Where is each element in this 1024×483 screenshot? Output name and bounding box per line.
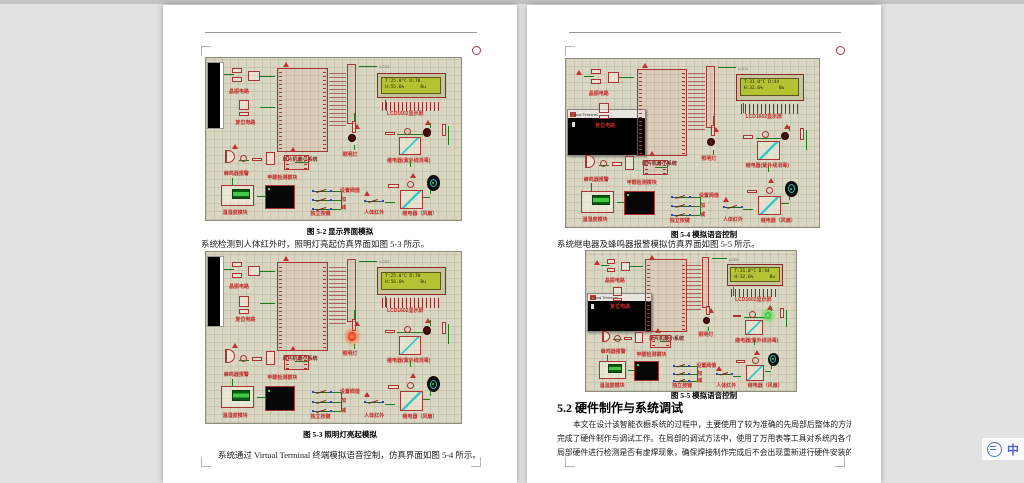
virtual-terminal-strip <box>208 257 223 325</box>
terminal-module-cursor <box>268 390 270 392</box>
terminal-module <box>265 185 296 208</box>
lcd1602-module: T:31.0°C D:44 H:32.6% Bu <box>727 264 784 286</box>
key-switch-lever <box>677 364 685 367</box>
key-switch <box>313 392 331 393</box>
pin-dot <box>312 208 314 210</box>
wire <box>354 145 355 150</box>
key-hint-label: 减 <box>341 408 346 414</box>
power-arrow-icon <box>723 197 729 202</box>
fan-transistor <box>766 187 773 194</box>
pir-switch <box>717 374 732 375</box>
figure-5-4-schematic: Virtual Terminal×晶振电路复位电路单片机最小系统LCD1T:31… <box>565 58 820 228</box>
wire <box>712 258 727 259</box>
fan-motor <box>427 175 440 190</box>
figure-5-5-schematic: Virtual Terminal×晶振电路复位电路单片机最小系统LCD1T:31… <box>585 250 797 392</box>
fan-relay <box>758 196 781 215</box>
adc-pins-right <box>304 156 307 168</box>
dht-label: 温湿度模块 <box>582 217 607 223</box>
mcu-chip <box>277 68 328 152</box>
key-switch-lever <box>676 213 686 217</box>
dht-screen <box>232 189 250 199</box>
pin-dot <box>671 214 673 216</box>
wire <box>619 77 634 78</box>
ime-mode-chinese[interactable]: 中 <box>1007 441 1019 458</box>
wire <box>708 327 709 331</box>
pin-header <box>702 257 710 309</box>
pir-label: 人体红外 <box>716 383 736 389</box>
power-arrow-icon <box>594 260 600 265</box>
keys-label: 独立按键 <box>672 383 692 389</box>
dht-label: 温湿度模块 <box>223 413 248 419</box>
pir-switch <box>365 402 383 403</box>
dht-module <box>221 185 254 206</box>
crystal-circuit-label: 晶振电路 <box>229 89 249 95</box>
key-switch-lever <box>316 409 326 413</box>
uv-transistor <box>404 326 411 333</box>
fan-resistor <box>736 360 744 363</box>
lamp-resistor <box>352 121 357 132</box>
key-switch-lever <box>676 195 686 199</box>
lcd-reference: LCD1 <box>738 66 748 72</box>
pin-dot <box>741 206 743 208</box>
mcu-chip <box>637 69 688 156</box>
capacitor <box>607 268 615 272</box>
ch2o-potentiometer <box>266 351 275 365</box>
buzzer-resistor <box>624 337 632 340</box>
pir-switch-lever <box>720 372 728 375</box>
lamp-label: 照明灯 <box>342 351 357 357</box>
terminal-module-cursor <box>268 188 270 190</box>
reset-resistor <box>239 309 249 313</box>
terminal-module-cursor <box>637 364 639 366</box>
pin-dot <box>312 391 314 393</box>
pin-dot <box>731 373 733 375</box>
power-arrow-icon <box>410 373 416 378</box>
capacitor <box>591 79 601 84</box>
lcd-reference: LCD1 <box>379 259 389 265</box>
reset-capacitor <box>239 100 249 110</box>
wire <box>397 134 423 135</box>
power-arrow-icon <box>232 343 238 348</box>
pin-dot <box>312 199 314 201</box>
pir-switch <box>365 201 383 202</box>
figure-5-2-schematic: 晶振电路复位电路单片机最小系统LCD1T:25.0°C D:70 H:55.6%… <box>205 57 462 221</box>
uv-pullup-resistor <box>800 128 805 140</box>
lcd-resistor-network <box>731 289 779 297</box>
lamp-led <box>348 134 356 142</box>
fan-motor-ring <box>430 380 437 389</box>
buzzer-speaker <box>602 331 610 342</box>
lcd1602-module: T:25.0°C D:70 H:55.6% Bu <box>377 73 446 99</box>
pin-dot <box>330 391 332 393</box>
wire <box>260 303 275 304</box>
terminal-module-cursor <box>627 194 629 196</box>
capacitor <box>232 273 242 278</box>
key-switch <box>672 197 690 198</box>
data-bus <box>329 266 346 324</box>
buzzer-transistor <box>240 155 247 162</box>
ime-toolbar[interactable]: 中 <box>981 437 1024 461</box>
ch2o-adc-chip <box>643 160 668 175</box>
mcu-pins-left <box>647 262 650 330</box>
wire <box>385 202 395 203</box>
uv-led <box>781 132 789 140</box>
wire <box>359 66 377 67</box>
lamp-led <box>703 317 710 324</box>
power-arrow-icon <box>425 318 431 323</box>
fan-resistor <box>747 190 757 193</box>
dht-label: 温湿度模块 <box>600 383 625 389</box>
window-top-strip <box>0 0 1024 4</box>
document-page-left: 晶振电路复位电路单片机最小系统LCD1T:25.0°C D:70 H:55.6%… <box>163 5 517 483</box>
pin-dot <box>673 365 675 367</box>
lcd-resistor-network <box>382 102 441 112</box>
body-text-line: 本文在设计该智能衣橱系统的过程中，主要使用了较为准确的先局部后整体的方法 <box>557 419 851 430</box>
terminal-cursor <box>591 304 594 309</box>
ch2o-potentiometer <box>625 156 634 169</box>
power-arrow-icon <box>642 63 648 68</box>
key-switch <box>313 200 331 201</box>
key-hint-label: 加 <box>700 203 705 209</box>
wire <box>331 402 341 403</box>
fan-motor <box>785 181 798 197</box>
fan-relay-label: 继电器（风扇） <box>761 218 796 224</box>
mcu-pins-right <box>323 70 326 149</box>
fan-motor-dot <box>772 358 774 360</box>
wire <box>743 209 753 210</box>
wire <box>331 200 341 201</box>
reset-capacitor <box>239 296 249 306</box>
lcd-label: LCD1602显示屏 <box>387 308 423 314</box>
lcd-screen: T:31.0°C D:44 H:32.6% Bu <box>730 267 779 282</box>
reset-circuit-label: 复位电路 <box>235 120 255 126</box>
uv-pullup-resistor <box>780 308 784 318</box>
power-arrow-icon <box>364 191 370 196</box>
reset-capacitor <box>613 287 621 295</box>
fan-relay-label: 继电器（风扇） <box>748 383 783 389</box>
crystal-circuit-label: 晶振电路 <box>229 284 249 290</box>
text-boundary-mark <box>836 46 845 55</box>
text-boundary-mark <box>565 457 575 467</box>
pin-dot <box>330 190 332 192</box>
mcu-pins-left <box>279 265 282 348</box>
key-hint-label: 设置阀值 <box>699 193 719 199</box>
key-switch <box>313 191 331 192</box>
key-switch-lever <box>316 189 326 193</box>
uv-resistor <box>743 135 753 138</box>
key-switch-lever <box>316 390 326 394</box>
pin-dot <box>723 206 725 208</box>
reset-resistor <box>239 112 249 116</box>
pin-dot <box>716 373 718 375</box>
mcu-pins-left <box>639 72 642 154</box>
adc-pins-right <box>304 356 307 369</box>
text-boundary-mark <box>835 457 845 467</box>
pin-dot <box>689 214 691 216</box>
uv-relay <box>745 320 764 335</box>
lamp-led <box>707 138 715 146</box>
adc-pins-left <box>286 156 289 168</box>
key-switch-lever <box>316 198 326 202</box>
wire <box>385 404 395 405</box>
wire <box>448 324 449 345</box>
uv-resistor <box>385 330 395 333</box>
wire <box>733 376 741 377</box>
paragraph: 系统检测到人体红外时，照明灯亮起仿真界面如图 5-3 所示。 <box>201 238 481 250</box>
lcd-label: LCD1602显示屏 <box>746 114 782 120</box>
adc-pins-left <box>652 336 655 346</box>
power-arrow-icon <box>410 173 416 178</box>
uv-transistor <box>749 311 756 318</box>
lcd1602-module: T:31.0°C D:44 H:32.6% Bu <box>736 74 804 101</box>
fan-motor-ring <box>788 184 795 193</box>
lcd-screen: T:25.0°C D:70 H:55.6% Bu <box>381 77 441 94</box>
buzzer-resistor <box>252 357 262 360</box>
mcu-chip <box>277 262 328 351</box>
key-switch <box>672 206 690 207</box>
keys-label: 独立按键 <box>311 211 331 217</box>
power-arrow-icon <box>425 120 431 125</box>
key-switch <box>674 366 689 367</box>
terminal-cursor <box>572 122 575 127</box>
body-text-line: 局部硬件进行检测是否有虚焊现象，确保焊接制作完成后不会出现重新进行硬件安装的 <box>557 447 851 458</box>
page-header-rule <box>569 32 841 33</box>
fan-motor-dot <box>790 188 792 190</box>
power-arrow-icon <box>716 366 722 371</box>
wire <box>397 332 423 333</box>
wire <box>260 271 275 272</box>
section-heading-5-2: 5.2 硬件制作与系统调试 <box>557 399 683 416</box>
uv-transistor <box>404 128 411 135</box>
buzzer-label: 蜂鸣器报警 <box>601 349 626 355</box>
dht-screen <box>592 195 610 205</box>
lamp-label: 照明灯 <box>342 152 357 158</box>
power-arrow-icon <box>283 62 289 67</box>
page-header-rule <box>205 32 477 33</box>
pir-label: 人体红外 <box>364 210 384 216</box>
uv-resistor <box>733 315 741 318</box>
wire <box>617 202 625 203</box>
fan-motor-ring <box>430 179 437 187</box>
paragraph: 系统继电器及蜂鸣器报警模拟仿真界面如图 5-5 所示。 <box>557 238 852 250</box>
wire <box>601 265 609 266</box>
pin-header <box>347 64 356 124</box>
uv-relay <box>757 141 780 159</box>
fan-transistor <box>752 357 759 364</box>
reset-resistor <box>599 115 609 119</box>
reset-resistor <box>613 298 621 302</box>
wire <box>806 130 807 150</box>
pir-label: 人体红外 <box>723 217 743 223</box>
uv-led <box>423 326 431 335</box>
lcd-resistor-network <box>382 298 441 308</box>
lcd1602-module: T:25.0°C D:70 H:56.6% Bu <box>377 267 446 294</box>
capacitor <box>232 77 242 82</box>
pin-dot <box>673 380 675 382</box>
wire <box>448 126 449 145</box>
pin-dot <box>673 373 675 375</box>
key-hint-label: 减 <box>697 378 702 384</box>
pin-dot <box>312 190 314 192</box>
wire <box>257 397 265 398</box>
power-arrow-icon <box>283 256 289 261</box>
uv-relay <box>399 336 422 355</box>
fan-transistor <box>407 382 414 389</box>
fan-resistor <box>388 385 398 388</box>
ch2o-adc-chip <box>650 335 671 348</box>
uv-resistor <box>385 132 395 135</box>
power-arrow-icon <box>754 350 760 355</box>
data-bus <box>329 71 346 126</box>
lcd-reference: LCD1 <box>379 64 389 70</box>
wire <box>423 399 431 400</box>
fan-motor <box>768 353 779 366</box>
terminal-module <box>265 386 296 411</box>
uv-relay-label: 继电器(紫外线消毒) <box>387 158 430 164</box>
key-switch-lever <box>676 204 686 208</box>
wire <box>786 310 787 327</box>
lamp-label: 照明灯 <box>701 156 716 162</box>
word-processor-canvas: 晶振电路复位电路单片机最小系统LCD1T:25.0°C D:70 H:55.6%… <box>0 0 1024 483</box>
ch2o-potentiometer <box>266 152 275 165</box>
pin-dot <box>671 196 673 198</box>
text-boundary-mark <box>201 46 211 56</box>
crystal-circuit-label: 晶振电路 <box>589 91 609 97</box>
uv-led <box>423 128 431 136</box>
uv-relay-label: 继电器(紫外线消毒) <box>746 163 789 169</box>
power-arrow-icon <box>768 178 774 183</box>
virtual-terminal-title: Virtual Terminal <box>570 112 597 117</box>
wire <box>224 269 234 270</box>
pin-dot <box>688 365 690 367</box>
key-hint-label: 加 <box>341 398 346 404</box>
pir-label: 人体红外 <box>364 413 384 419</box>
pin-dot <box>312 410 314 412</box>
crystal-oscillator <box>248 266 259 276</box>
reset-capacitor <box>599 103 609 113</box>
uv-relay-label: 继电器(紫外线消毒) <box>387 358 430 364</box>
key-hint-label: 加 <box>697 371 702 377</box>
lamp-label: 照明灯 <box>698 332 713 338</box>
dht-module <box>599 361 626 379</box>
reset-circuit-label: 复位电路 <box>610 304 630 310</box>
paragraph: 系统通过 Virtual Terminal 终端模拟语音控制，仿真界面如图 5-… <box>201 449 481 461</box>
fan-relay <box>400 190 423 209</box>
buzzer-label: 蜂鸣器报警 <box>224 372 249 378</box>
fan-relay <box>746 365 765 381</box>
fan-motor-dot <box>432 383 434 385</box>
pin-dot <box>382 401 384 403</box>
fan-resistor <box>388 184 398 187</box>
mcu-pins-right <box>323 265 326 348</box>
capacitor <box>232 68 242 73</box>
adc-pins-left <box>286 356 289 369</box>
terminal-module <box>634 361 659 381</box>
pir-switch <box>724 207 742 208</box>
figure-5-3-caption: 图 5-3 照明灯亮起模拟 <box>163 429 517 440</box>
wire <box>260 107 275 108</box>
lcd-label: LCD1602显示屏 <box>387 111 423 117</box>
body-text-line: 完成了硬件制作与调试工作。在局部的调试方法中，使用了万用表等工具对系统内各个 <box>557 433 851 444</box>
wire <box>584 76 594 77</box>
key-hint-label: 设置阀值 <box>340 188 360 194</box>
lamp-resistor <box>352 319 357 331</box>
text-boundary-mark <box>472 46 481 55</box>
figure-5-2-caption: 图 5-2 显示界面模拟 <box>163 226 517 237</box>
virtual-terminal-strip <box>208 63 223 128</box>
wire <box>354 344 355 349</box>
fan-relay-label: 继电器（风扇） <box>402 211 437 217</box>
dht-module <box>581 191 614 213</box>
capacitor <box>607 259 615 263</box>
power-arrow-icon <box>364 392 370 397</box>
mcu-pins-left <box>279 70 282 149</box>
key-switch-lever <box>316 400 326 404</box>
ch2o-adc-chip <box>284 355 310 370</box>
fan-transistor <box>407 181 414 188</box>
buzzer-speaker <box>225 150 235 163</box>
dht-module <box>221 386 254 408</box>
key-switch-lever <box>677 372 685 375</box>
lcd-reference: LCD1 <box>729 257 739 263</box>
key-hint-label: 减 <box>700 212 705 218</box>
ch2o-label: 甲醛检测模块 <box>627 180 657 186</box>
pin-dot <box>689 196 691 198</box>
ch2o-label: 甲醛检测模块 <box>636 352 666 358</box>
pin-header <box>706 66 715 128</box>
mcu-chip <box>645 259 687 332</box>
key-hint-label: 加 <box>341 197 346 203</box>
wire <box>713 150 714 155</box>
buzzer-transistor <box>600 160 607 167</box>
keys-label: 独立按键 <box>670 218 690 224</box>
uv-relay-label: 继电器(紫外线消毒) <box>735 338 778 344</box>
wire <box>690 206 700 207</box>
buzzer-label: 蜂鸣器报警 <box>224 171 249 177</box>
keys-label: 独立按键 <box>311 414 331 420</box>
pin-dot <box>330 401 332 403</box>
power-arrow-icon <box>767 305 773 310</box>
ch2o-adc-chip <box>284 155 310 170</box>
key-switch <box>313 209 331 210</box>
key-hint-label: 减 <box>341 205 346 211</box>
buzzer-resistor <box>612 162 622 165</box>
lcd-screen: T:25.0°C D:70 H:56.6% Bu <box>381 272 441 290</box>
crystal-oscillator <box>608 72 619 82</box>
dht-label: 温湿度模块 <box>223 210 248 216</box>
adc-pins-right <box>663 161 666 174</box>
key-switch <box>313 411 331 412</box>
lcd-screen: T:31.0°C D:44 H:32.6% Bu <box>740 78 800 96</box>
buzzer-resistor <box>252 158 262 161</box>
wire <box>765 371 771 372</box>
figure-5-3-schematic: 晶振电路复位电路单片机最小系统LCD1T:25.0°C D:70 H:56.6%… <box>205 251 462 424</box>
data-bus <box>687 262 701 310</box>
document-page-right: Virtual Terminal×晶振电路复位电路单片机最小系统LCD1T:31… <box>527 5 881 483</box>
lcd-resistor-network <box>741 104 799 114</box>
wire <box>331 411 341 412</box>
uv-led <box>765 312 772 319</box>
text-boundary-mark <box>565 46 575 56</box>
pir-switch-lever <box>727 205 737 209</box>
pin-dot <box>330 199 332 201</box>
ch2o-label: 甲醛检测模块 <box>267 375 297 381</box>
wire <box>630 266 643 267</box>
ime-badge-icon[interactable] <box>987 442 1002 457</box>
uv-pullup-resistor <box>442 124 447 135</box>
wire <box>423 197 431 198</box>
pir-switch-lever <box>369 199 379 203</box>
